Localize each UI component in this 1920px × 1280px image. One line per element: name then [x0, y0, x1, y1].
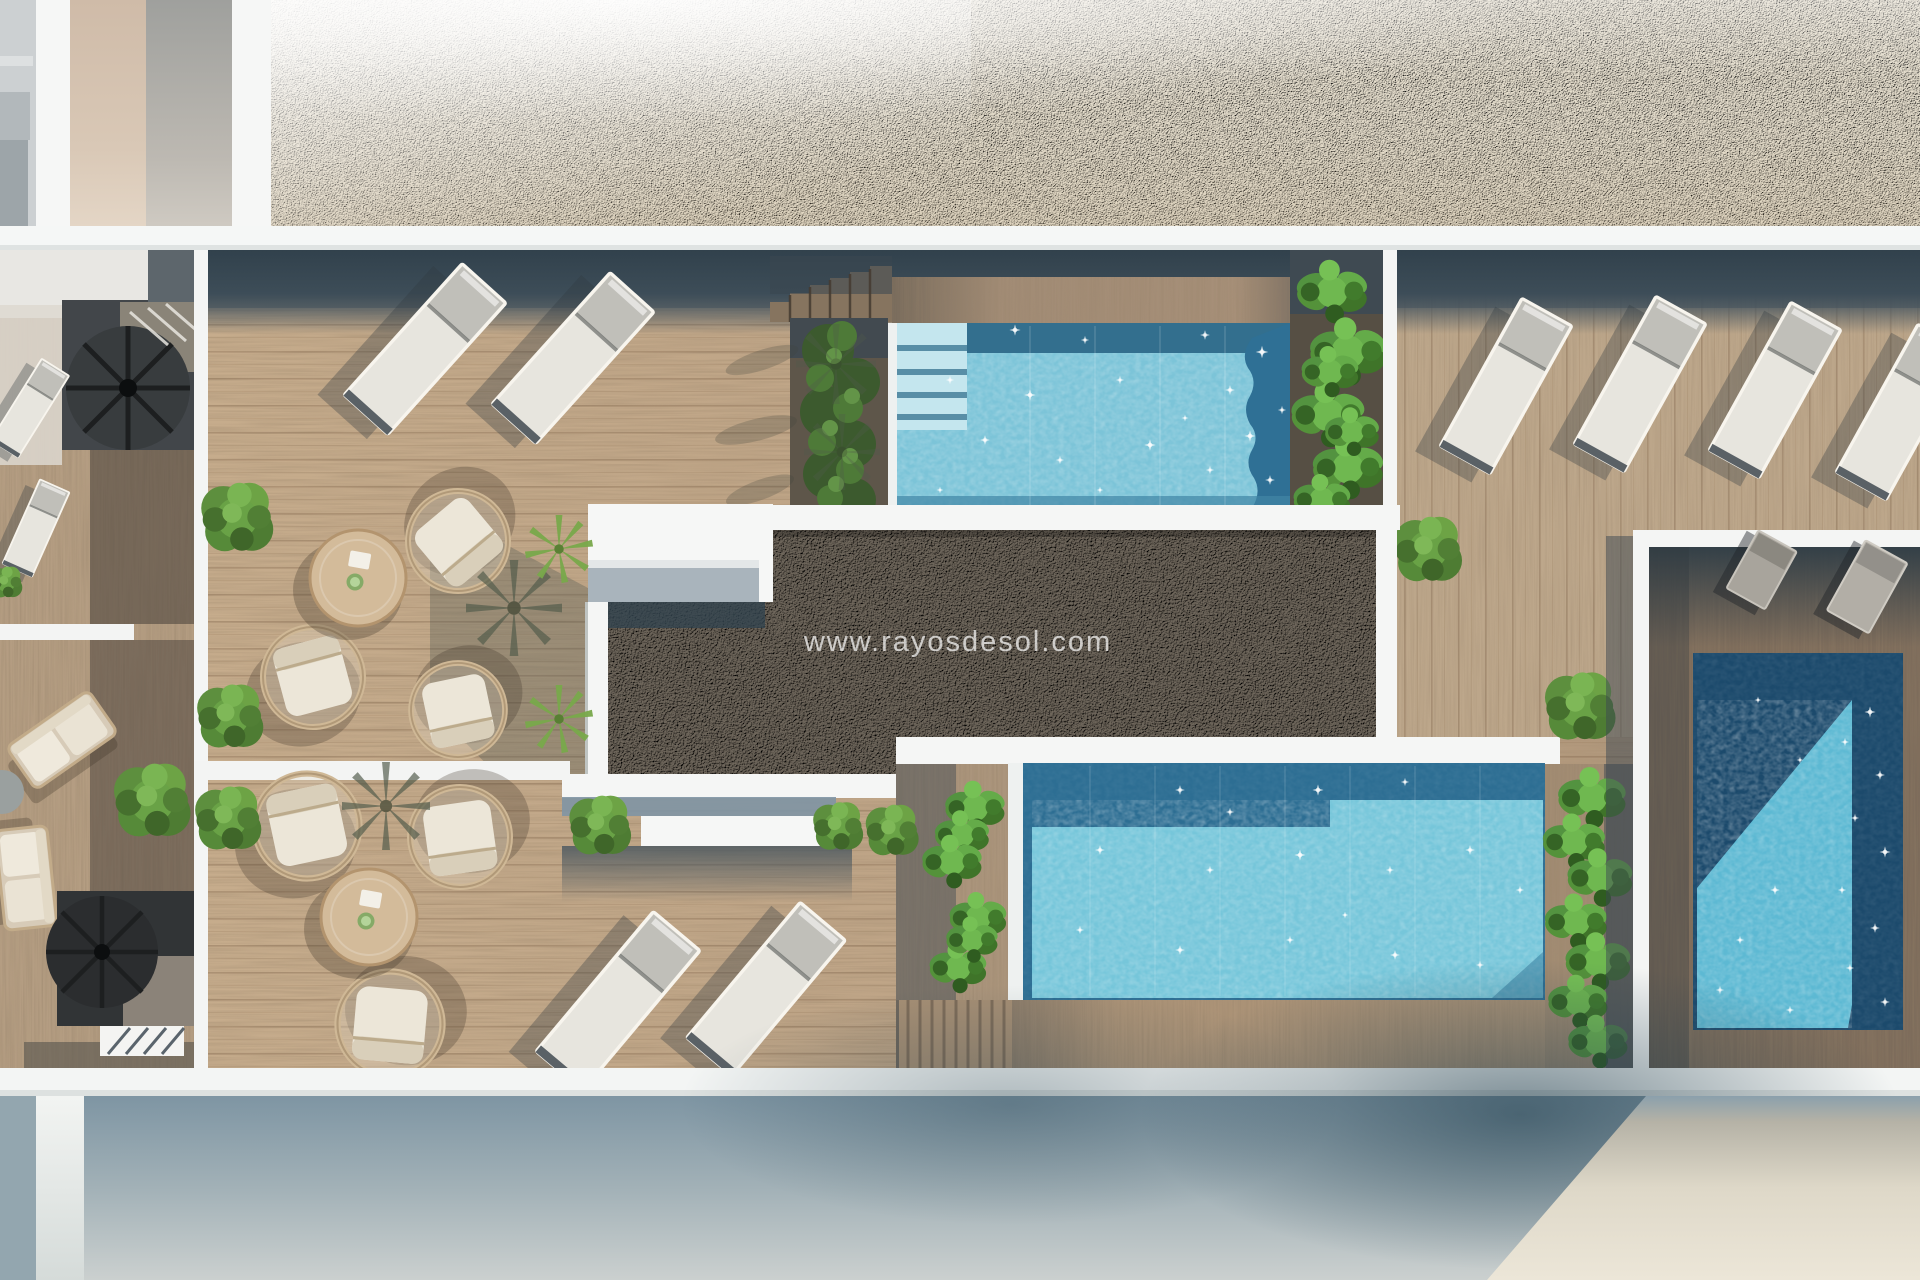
svg-text:www.rayosdesol.com: www.rayosdesol.com [803, 626, 1112, 658]
